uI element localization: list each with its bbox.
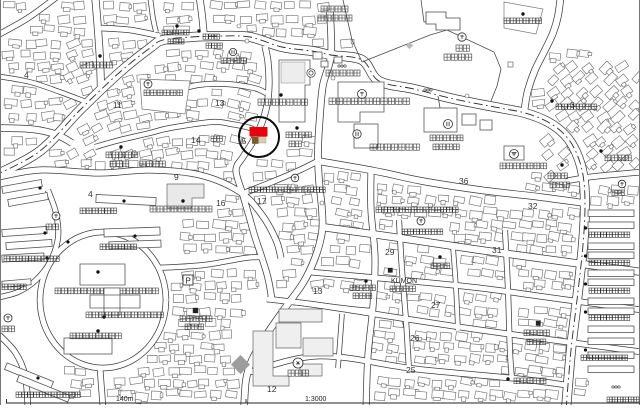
svg-text:31: 31 xyxy=(492,245,502,255)
svg-text:4: 4 xyxy=(88,189,93,199)
svg-text:P: P xyxy=(186,277,191,286)
svg-text:17: 17 xyxy=(257,196,267,206)
svg-text:4: 4 xyxy=(24,70,29,80)
svg-text:27: 27 xyxy=(431,300,441,310)
svg-text:36: 36 xyxy=(459,176,469,186)
svg-text:KUMON: KUMON xyxy=(391,278,417,285)
svg-text:26: 26 xyxy=(410,333,420,343)
svg-text:11: 11 xyxy=(113,100,122,110)
svg-text:3: 3 xyxy=(570,100,575,110)
svg-text:32: 32 xyxy=(528,201,538,211)
svg-text:9: 9 xyxy=(174,172,179,182)
svg-text:14: 14 xyxy=(191,135,201,145)
svg-text:1:3000: 1:3000 xyxy=(305,396,327,403)
svg-text:13: 13 xyxy=(215,98,225,108)
svg-text:140m: 140m xyxy=(116,396,134,403)
svg-text:16: 16 xyxy=(216,198,226,208)
svg-text:15: 15 xyxy=(237,136,247,146)
svg-text:13: 13 xyxy=(313,286,323,296)
svg-text:25: 25 xyxy=(406,365,416,375)
svg-text:29: 29 xyxy=(385,247,395,257)
svg-text:12: 12 xyxy=(267,384,277,394)
